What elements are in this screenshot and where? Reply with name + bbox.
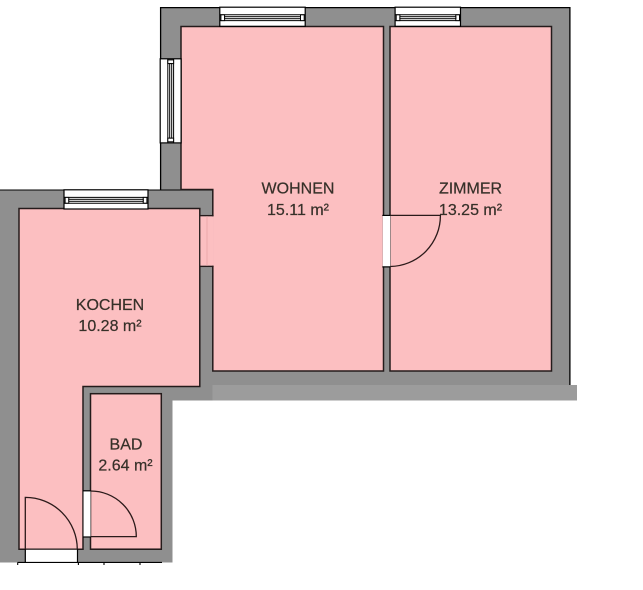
svg-text:15.11 m²: 15.11 m²	[267, 202, 330, 219]
svg-text:2.64 m²: 2.64 m²	[98, 458, 153, 475]
svg-text:ZIMMER: ZIMMER	[439, 181, 502, 198]
svg-text:WOHNEN: WOHNEN	[262, 181, 335, 198]
svg-text:BAD: BAD	[110, 437, 143, 454]
svg-text:KOCHEN: KOCHEN	[76, 297, 144, 314]
svg-text:10.28 m²: 10.28 m²	[78, 318, 142, 335]
svg-text:13.25 m²: 13.25 m²	[439, 202, 503, 219]
